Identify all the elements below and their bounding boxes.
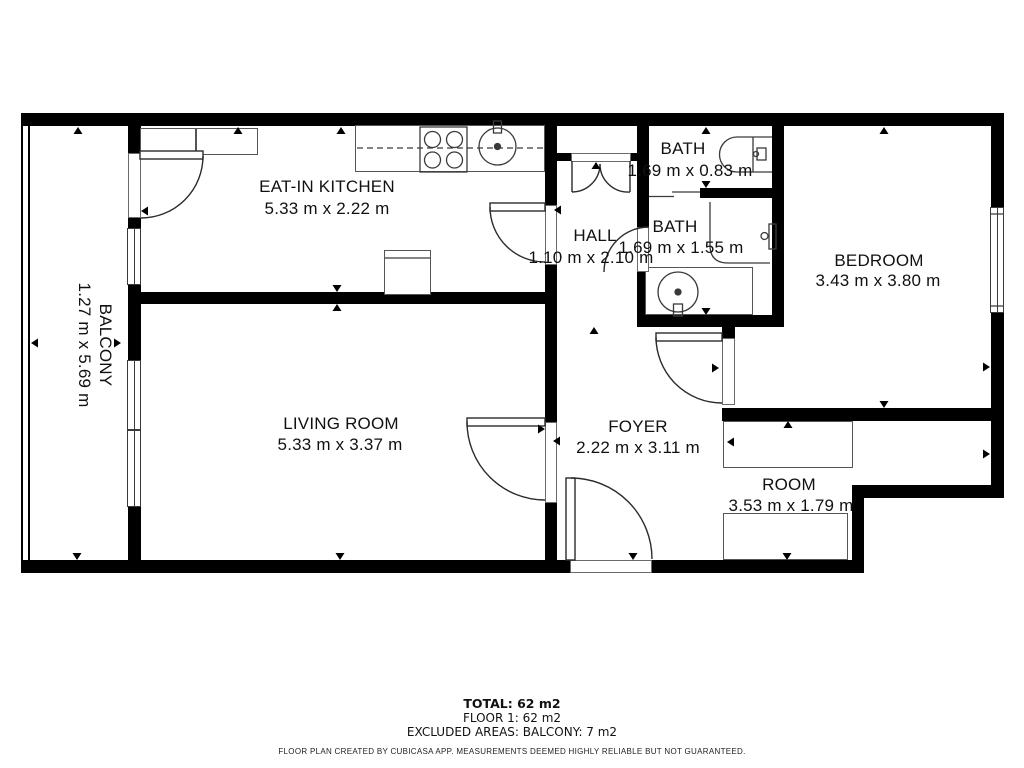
- shower-knob: [761, 233, 768, 240]
- room-label-balcony: BALCONY 1.27 m x 5.69 m: [74, 283, 116, 408]
- kitchen-door-leaf: [490, 203, 545, 211]
- room-dims-bedroom: 3.43 m x 3.80 m: [816, 271, 941, 291]
- stove-burner: [425, 152, 441, 168]
- room-label-room: ROOM: [762, 475, 816, 495]
- room-dims-room: 3.53 m x 1.79 m: [729, 496, 854, 516]
- shower-fixture: [769, 224, 776, 249]
- summary-floor: FLOOR 1: 62 m2: [0, 711, 1024, 725]
- bedroom-door-leaf: [656, 333, 722, 341]
- room-label-living: LIVING ROOM: [283, 414, 399, 434]
- room-dims-bath: 1.69 m x 1.55 m: [619, 238, 744, 258]
- sliding-door: [649, 192, 700, 197]
- stove-burner: [447, 132, 463, 148]
- living-door-leaf: [467, 418, 545, 426]
- balcony-door-arc: [141, 156, 203, 218]
- balcony-door-leaf: [140, 151, 203, 159]
- summary-excluded: EXCLUDED AREAS: BALCONY: 7 m2: [0, 725, 1024, 739]
- bath-basin-tap: [674, 304, 683, 316]
- kitchen-sink-tap: [494, 121, 502, 133]
- room-dims-foyer: 2.22 m x 3.11 m: [576, 438, 700, 458]
- room-label-bath: BATH: [653, 217, 698, 237]
- entrance-door-arc: [571, 478, 652, 559]
- room-dims-bath-top: 1.69 m x 0.83 m: [628, 161, 753, 181]
- balcony-name: BALCONY: [95, 283, 116, 408]
- door-arcs: [140, 151, 722, 560]
- floor-plan: EAT-IN KITCHEN 5.33 m x 2.22 m HALL 1.10…: [0, 0, 1024, 768]
- room-label-foyer: FOYER: [608, 417, 668, 437]
- room-label-kitchen: EAT-IN KITCHEN: [259, 177, 395, 197]
- closet-bifold-right: [600, 161, 630, 192]
- living-door-arc: [467, 422, 545, 500]
- room-label-hall: HALL: [573, 226, 616, 246]
- stove-burner: [425, 132, 441, 148]
- disclaimer: FLOOR PLAN CREATED BY CUBICASA APP. MEAS…: [0, 747, 1024, 756]
- room-label-bedroom: BEDROOM: [834, 251, 923, 271]
- room-dims-kitchen: 5.33 m x 2.22 m: [265, 199, 390, 219]
- room-dims-living: 5.33 m x 3.37 m: [278, 435, 403, 455]
- room-label-bath-top: BATH: [661, 139, 706, 159]
- stove-burner: [447, 152, 463, 168]
- summary-total: TOTAL: 62 m2: [0, 696, 1024, 711]
- entrance-door-leaf: [566, 478, 575, 560]
- fixtures-layer: [0, 0, 1024, 768]
- balcony-dims: 1.27 m x 5.69 m: [74, 283, 95, 408]
